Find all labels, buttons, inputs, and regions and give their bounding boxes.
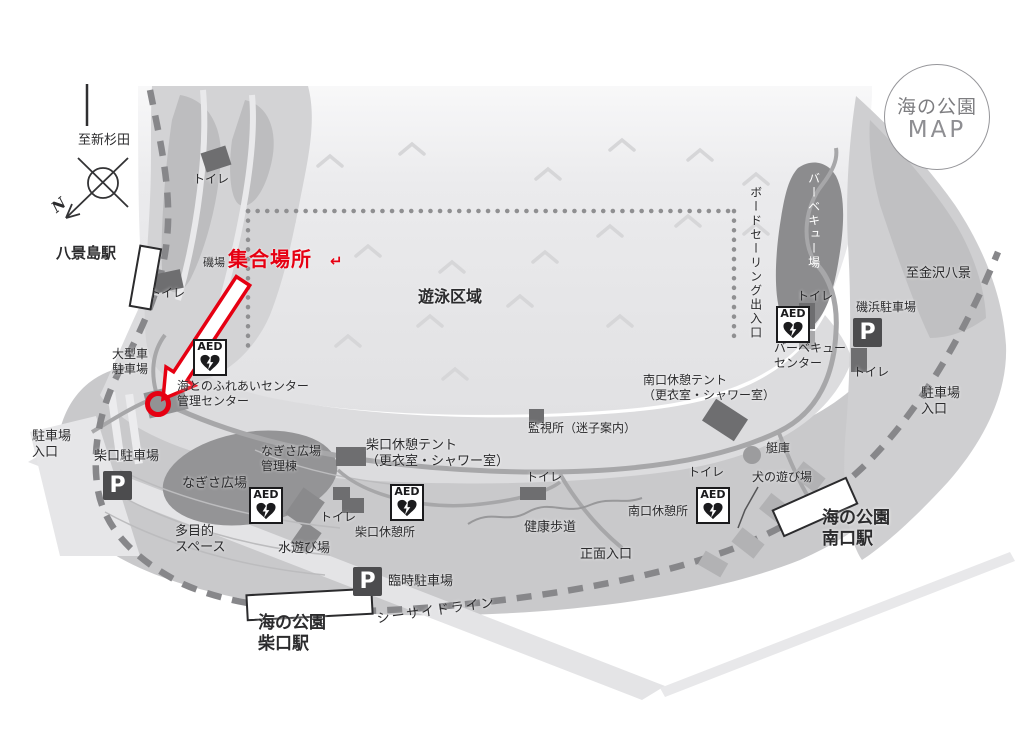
- label-toilet: トイレ: [320, 510, 356, 525]
- label-multipurpose-line1: 多目的: [175, 524, 225, 540]
- label-water-play: 水遊び場: [278, 541, 330, 557]
- parking-icon: P: [853, 318, 882, 347]
- map-title-line1: 海の公園: [897, 92, 977, 119]
- label-south-tent-line2: （更衣室・シャワー室）: [643, 388, 775, 403]
- park-map: 至新杉田 八景島駅 トイレ トイレ 磯場 集合場所 ↵ 遊泳区域 ボードセーリン…: [0, 0, 1032, 740]
- label-rocky-shore: 磯場: [203, 256, 225, 269]
- label-shibaguchi-rest: 柴口休憩所: [355, 525, 415, 540]
- aed-heart-icon: [254, 501, 278, 522]
- label-toilet: トイレ: [526, 470, 562, 485]
- aed-heart-icon: [701, 501, 725, 522]
- aed-icon-label: AED: [700, 489, 725, 501]
- label-multipurpose-line2: スペース: [175, 540, 225, 556]
- aed-heart-icon: [395, 498, 419, 519]
- label-toilet: トイレ: [193, 172, 229, 187]
- boathouse-shape: [743, 446, 761, 464]
- label-swim-area: 遊泳区域: [418, 287, 482, 307]
- label-shibaguchi-station: 海の公園 柴口駅: [258, 613, 326, 654]
- label-main-entrance: 正面入口: [580, 547, 632, 563]
- label-boardsailing-gate: ボードセーリング出入口: [748, 186, 763, 340]
- label-dog-play: 犬の遊び場: [752, 470, 812, 485]
- label-large-vehicle-parking: 大型車 駐車場: [112, 347, 148, 376]
- label-fureai-center-line1: 海とのふれあいセンター: [177, 379, 309, 394]
- aed-icon-label: AED: [780, 308, 805, 320]
- label-nagisa-plaza: なぎさ広場: [182, 476, 247, 492]
- label-parking-entrance-line2: 入口: [921, 402, 960, 418]
- label-to-shinsugita: 至新杉田: [78, 133, 130, 149]
- label-fureai-center-line2: 管理センター: [177, 394, 309, 409]
- compass-icon: [66, 158, 128, 218]
- aed-icon: AED: [696, 487, 730, 524]
- map-title-line2: MAP: [908, 119, 966, 142]
- label-boathouse: 艇庫: [766, 441, 790, 456]
- label-large-vehicle-parking-line2: 駐車場: [112, 362, 148, 377]
- label-nagisa-admin: なぎさ広場 管理棟: [261, 444, 321, 473]
- label-shibaguchi-tent-line2: （更衣室・シャワー室）: [366, 454, 509, 470]
- label-south-station: 海の公園 南口駅: [822, 508, 890, 549]
- label-bbq-center-line1: バーベキュー: [774, 341, 846, 356]
- label-parking-entrance-east: 駐車場 入口: [921, 386, 960, 418]
- label-multipurpose-space: 多目的 スペース: [175, 524, 225, 556]
- aed-icon: AED: [776, 306, 810, 343]
- label-shibaguchi-parking: 柴口駐車場: [94, 449, 159, 465]
- label-shibaguchi-station-line2: 柴口駅: [258, 634, 326, 655]
- label-nagisa-admin-line2: 管理棟: [261, 459, 321, 474]
- parking-icon: P: [103, 471, 132, 500]
- label-health-walk: 健康歩道: [524, 520, 576, 536]
- label-bbq-center: バーベキュー センター: [774, 341, 846, 370]
- meeting-return-icon: ↵: [330, 252, 343, 270]
- aed-icon-label: AED: [197, 341, 222, 353]
- label-south-tent: 南口休憩テント （更衣室・シャワー室）: [643, 373, 775, 402]
- label-watch-station: 監視所（迷子案内）: [528, 421, 636, 436]
- label-parking-entrance-west: 駐車場 入口: [32, 429, 71, 461]
- label-parking-entrance-line2: 入口: [32, 445, 71, 461]
- label-toilet: トイレ: [149, 286, 185, 301]
- label-parking-entrance-line1: 駐車場: [921, 386, 960, 402]
- label-parking-entrance-line1: 駐車場: [32, 429, 71, 445]
- label-temp-parking: 臨時駐車場: [388, 574, 453, 590]
- map-title-badge: 海の公園 MAP: [884, 64, 990, 170]
- label-toilet: トイレ: [797, 289, 833, 304]
- label-toilet: トイレ: [853, 365, 889, 380]
- label-bbq-center-line2: センター: [774, 356, 846, 371]
- label-shibaguchi-station-line1: 海の公園: [258, 613, 326, 634]
- label-south-station-line1: 海の公園: [822, 508, 890, 529]
- label-fureai-center: 海とのふれあいセンター 管理センター: [177, 379, 309, 408]
- label-isohama-parking: 磯浜駐車場: [856, 300, 916, 315]
- label-nagisa-admin-line1: なぎさ広場: [261, 444, 321, 459]
- aed-icon: AED: [193, 339, 227, 376]
- aed-heart-icon: [198, 353, 222, 374]
- label-toilet: トイレ: [688, 465, 724, 480]
- parking-icon: P: [353, 567, 382, 596]
- label-to-kanazawa-hakkei: 至金沢八景: [906, 266, 971, 282]
- aed-icon: AED: [390, 484, 424, 521]
- label-shibaguchi-tent-line1: 柴口休憩テント: [366, 438, 509, 454]
- aed-icon: AED: [249, 487, 283, 524]
- label-south-station-line2: 南口駅: [822, 529, 890, 550]
- label-south-tent-line1: 南口休憩テント: [643, 373, 775, 388]
- aed-icon-label: AED: [394, 486, 419, 498]
- aed-icon-label: AED: [253, 489, 278, 501]
- aed-heart-icon: [781, 320, 805, 341]
- label-meeting-place: 集合場所: [228, 247, 312, 271]
- label-hakkeijima-station: 八景島駅: [56, 244, 116, 262]
- label-bbq-ground: バーベキュー場: [806, 172, 821, 270]
- label-south-rest: 南口休憩所: [628, 504, 688, 519]
- label-large-vehicle-parking-line1: 大型車: [112, 347, 148, 362]
- label-shibaguchi-tent: 柴口休憩テント （更衣室・シャワー室）: [366, 438, 509, 470]
